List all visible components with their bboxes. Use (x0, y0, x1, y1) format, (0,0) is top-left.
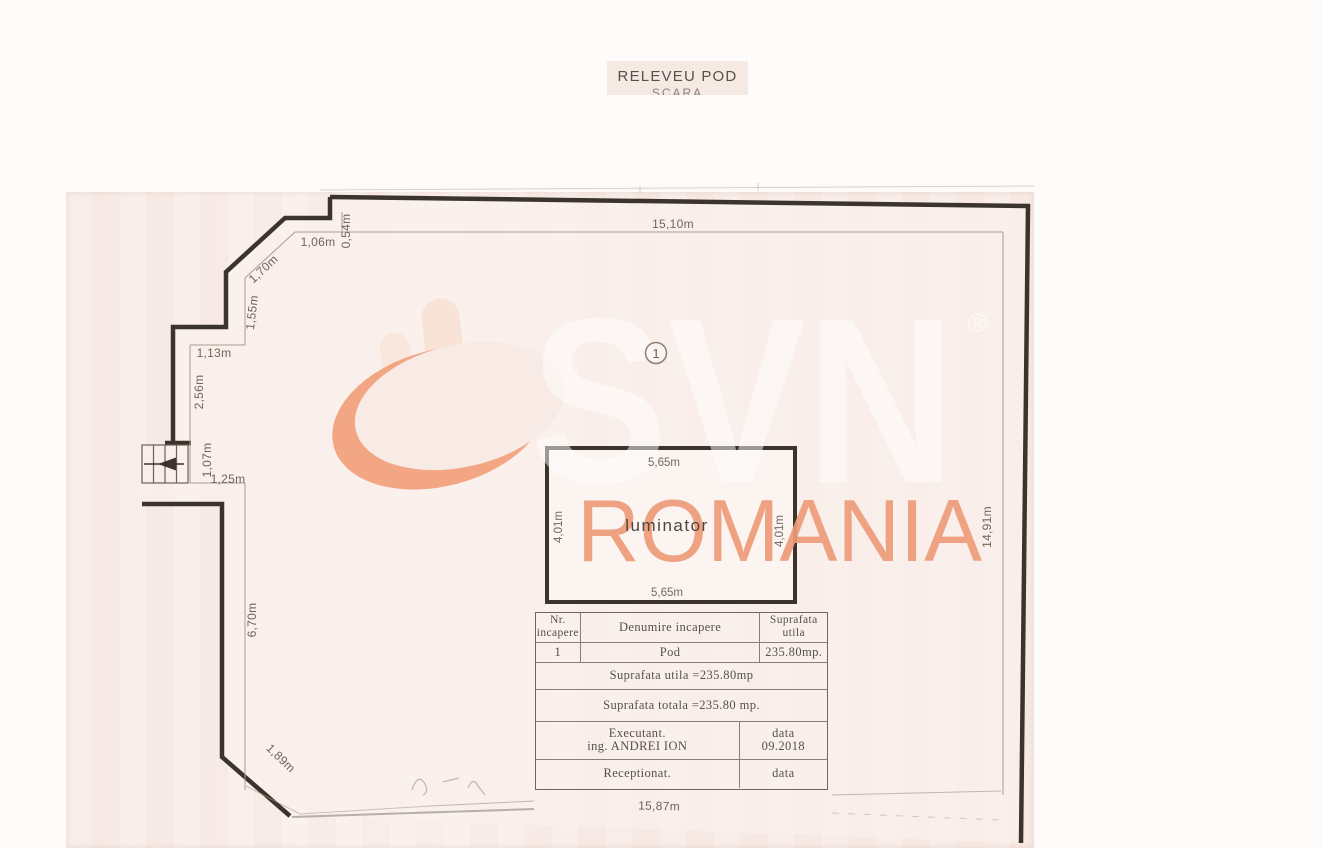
executant-cell: Executant. ing. ANDREI ION (536, 722, 740, 759)
dim-1-13: 1,13m (197, 346, 232, 360)
table-row-executant: Executant. ing. ANDREI ION data 09.2018 (536, 722, 827, 760)
header-nr-line1: Nr. (550, 614, 566, 627)
receptionat-date-cell: data (740, 760, 827, 788)
cell-room-area: 235.80mp. (760, 643, 827, 662)
room-schedule-table: Nr. incapere Denumire incapere Suprafata… (535, 612, 828, 790)
executant-date-value: 09.2018 (762, 740, 805, 753)
table-row-suprafata-totala: Suprafata totala =235.80 mp. (536, 690, 827, 722)
table-row-receptionat: Receptionat. data (536, 760, 827, 788)
table-header-denumire: Denumire incapere (581, 613, 761, 642)
dim-1-06: 1,06m (301, 235, 336, 249)
executant-date-cell: data 09.2018 (740, 722, 827, 759)
cropped-top-line (320, 186, 1034, 190)
receptionat-cell: Receptionat. (536, 760, 740, 788)
header-suprafata-line2: utila (783, 627, 805, 640)
dim-right: 14,91m (980, 506, 994, 548)
scanned-floor-plan-page: RELEVEU POD SCARA (0, 0, 1322, 848)
dim-6-70: 6,70m (245, 603, 259, 638)
dim-1-25: 1,25m (211, 472, 246, 486)
table-header-suprafata: Suprafata utila (760, 613, 827, 642)
dim-luminator-top: 5,65m (648, 457, 680, 469)
dim-2-56: 2,56m (192, 375, 206, 410)
dim-luminator-left: 4,01m (553, 511, 565, 543)
header-nr-line2: incapere (537, 627, 579, 640)
table-header-nr: Nr. incapere (536, 613, 581, 642)
watermark-registered-icon: ® (968, 308, 987, 338)
cell-room-name: Pod (581, 643, 761, 662)
room-number: 1 (652, 346, 659, 361)
total-totala-text: Suprafata totala =235.80 mp. (536, 690, 827, 721)
luminator-label: luminator (625, 516, 708, 535)
dim-top: 15,10m (652, 217, 694, 231)
room-number-symbol: 1 (646, 343, 667, 364)
total-utila-text: Suprafata utila =235.80mp (536, 663, 827, 689)
table-row-pod: 1 Pod 235.80mp. (536, 643, 827, 663)
cell-room-nr: 1 (536, 643, 581, 662)
executant-name: ing. ANDREI ION (587, 740, 687, 753)
dim-luminator-bottom: 5,65m (651, 587, 683, 599)
table-header-row: Nr. incapere Denumire incapere Suprafata… (536, 613, 827, 643)
header-denumire-text: Denumire incapere (619, 621, 721, 634)
dim-bottom: 15,87m (638, 798, 680, 813)
dim-luminator-right: 4,01m (774, 515, 786, 547)
dim-0-54: 0,54m (339, 214, 353, 249)
table-row-suprafata-utila: Suprafata utila =235.80mp (536, 663, 827, 690)
header-suprafata-line1: Suprafata (770, 614, 818, 627)
